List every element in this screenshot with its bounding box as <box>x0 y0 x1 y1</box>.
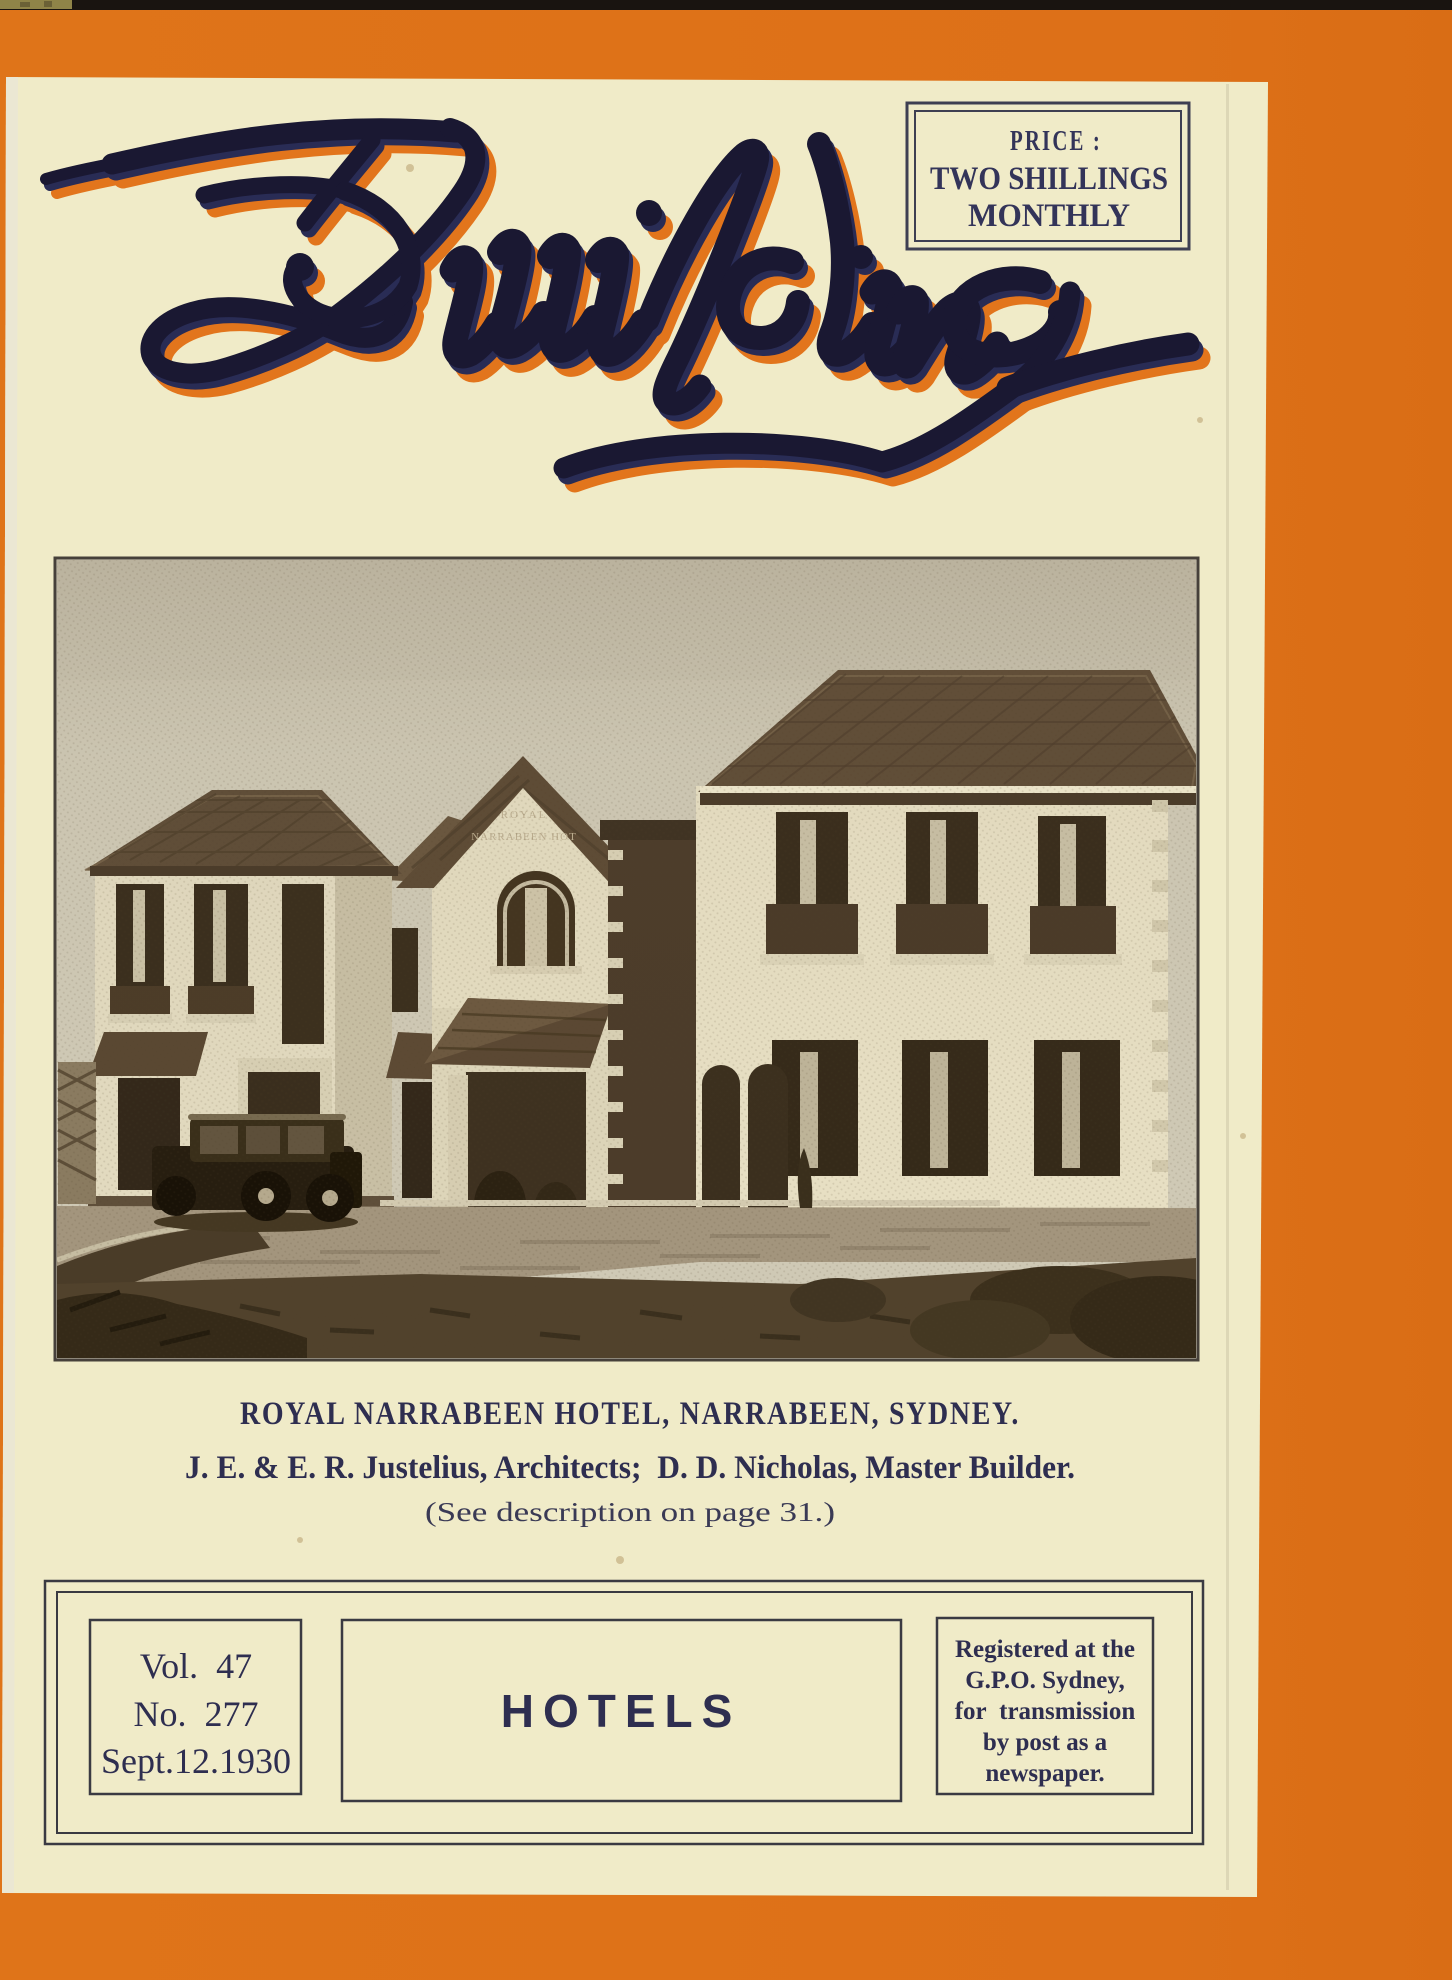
svg-text:HOTELS: HOTELS <box>501 1685 742 1737</box>
svg-text:Registered at the: Registered at the <box>955 1636 1135 1663</box>
svg-text:for transmission: for transmission <box>955 1698 1136 1725</box>
svg-text:PRICE :: PRICE : <box>1010 125 1102 157</box>
svg-text:J. E. & E. R. Justelius, Archi: J. E. & E. R. Justelius, Architects; D. … <box>185 1450 1075 1486</box>
svg-text:newspaper.: newspaper. <box>985 1760 1104 1787</box>
svg-text:No. 277: No. 277 <box>134 1694 259 1734</box>
svg-text:Sept.12.1930: Sept.12.1930 <box>101 1741 291 1781</box>
svg-text:ROYAL NARRABEEN HOTEL, NARRABE: ROYAL NARRABEEN HOTEL, NARRABEEN, SYDNEY… <box>240 1396 1020 1432</box>
svg-text:Vol. 47: Vol. 47 <box>140 1646 252 1686</box>
svg-text:by post as a: by post as a <box>983 1729 1108 1756</box>
svg-text:MONTHLY: MONTHLY <box>968 198 1130 234</box>
svg-text:(See description on page 31.): (See description on page 31.) <box>425 1497 835 1527</box>
svg-text:TWO SHILLINGS: TWO SHILLINGS <box>930 161 1168 197</box>
svg-text:G.P.O. Sydney,: G.P.O. Sydney, <box>965 1667 1125 1694</box>
